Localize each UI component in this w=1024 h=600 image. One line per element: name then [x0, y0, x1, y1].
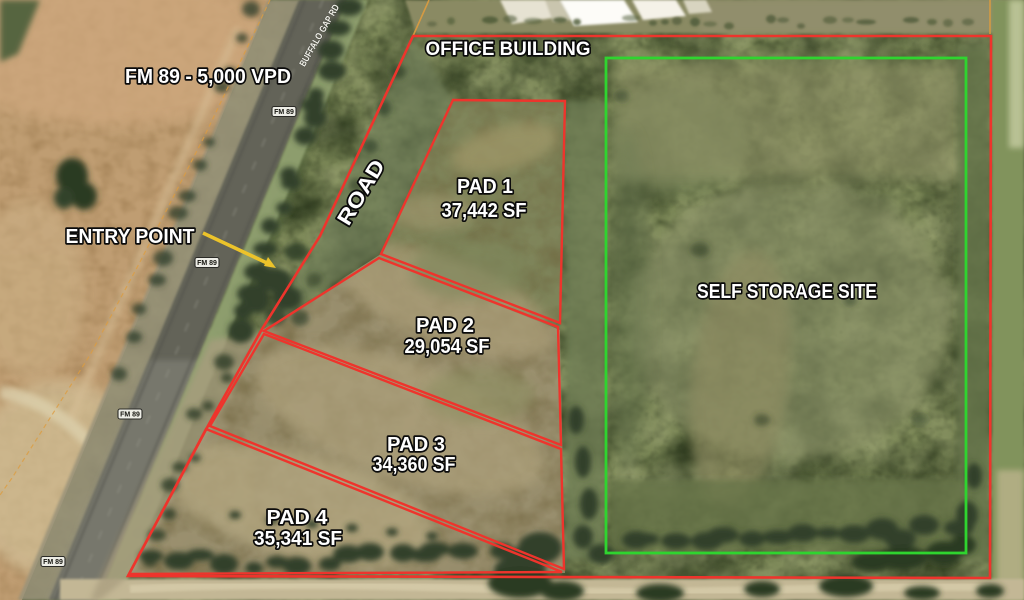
svg-text:FM 89: FM 89: [274, 109, 294, 116]
svg-text:34,360 SF: 34,360 SF: [373, 454, 456, 476]
svg-text:35,341 SF: 35,341 SF: [254, 528, 342, 550]
svg-text:37,442 SF: 37,442 SF: [442, 200, 527, 222]
svg-text:PAD 2: PAD 2: [416, 315, 474, 337]
svg-text:FM 89: FM 89: [43, 559, 63, 566]
svg-text:PAD 4: PAD 4: [267, 507, 329, 529]
svg-text:FM 89 - 5,000 VPD: FM 89 - 5,000 VPD: [125, 66, 291, 88]
svg-text:FM 89: FM 89: [120, 412, 140, 419]
svg-text:FM 89: FM 89: [197, 260, 217, 267]
svg-text:PAD 3: PAD 3: [387, 434, 445, 456]
svg-text:PAD 1: PAD 1: [457, 176, 513, 198]
svg-text:29,054 SF: 29,054 SF: [405, 336, 490, 358]
svg-text:SELF STORAGE SITE: SELF STORAGE SITE: [697, 281, 877, 303]
svg-text:ENTRY POINT: ENTRY POINT: [66, 226, 195, 248]
svg-text:OFFICE BUILDING: OFFICE BUILDING: [426, 39, 591, 60]
